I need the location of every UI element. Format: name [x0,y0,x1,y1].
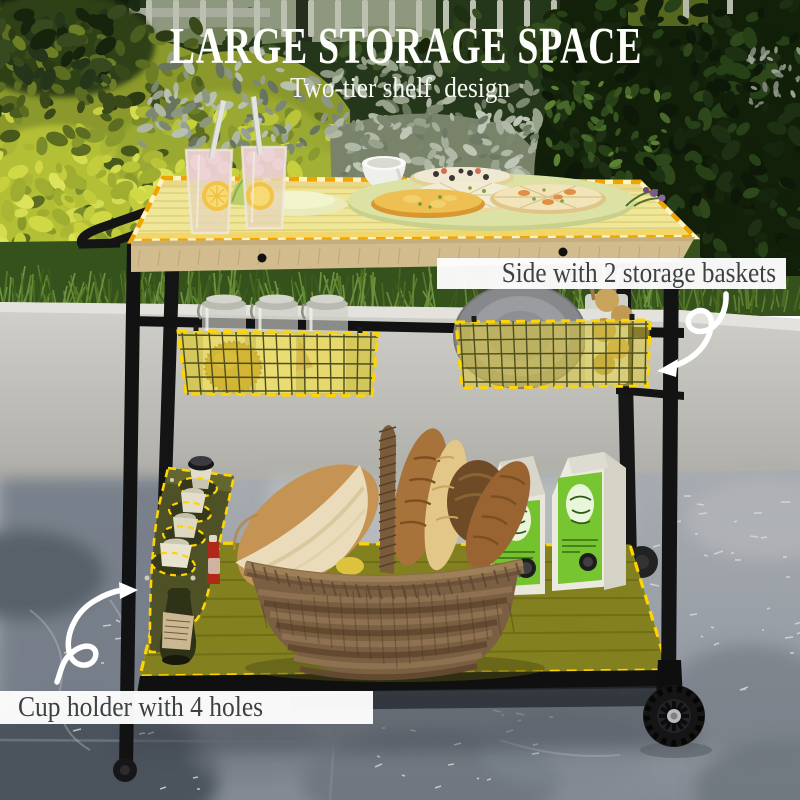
svg-text:Side with 2 storage baskets: Side with 2 storage baskets [502,257,776,289]
svg-text:Two-tier shelf design: Two-tier shelf design [290,72,510,104]
svg-text:LARGE STORAGE SPACE: LARGE STORAGE SPACE [170,16,642,74]
svg-text:Cup holder with 4 holes: Cup holder with 4 holes [18,691,263,723]
